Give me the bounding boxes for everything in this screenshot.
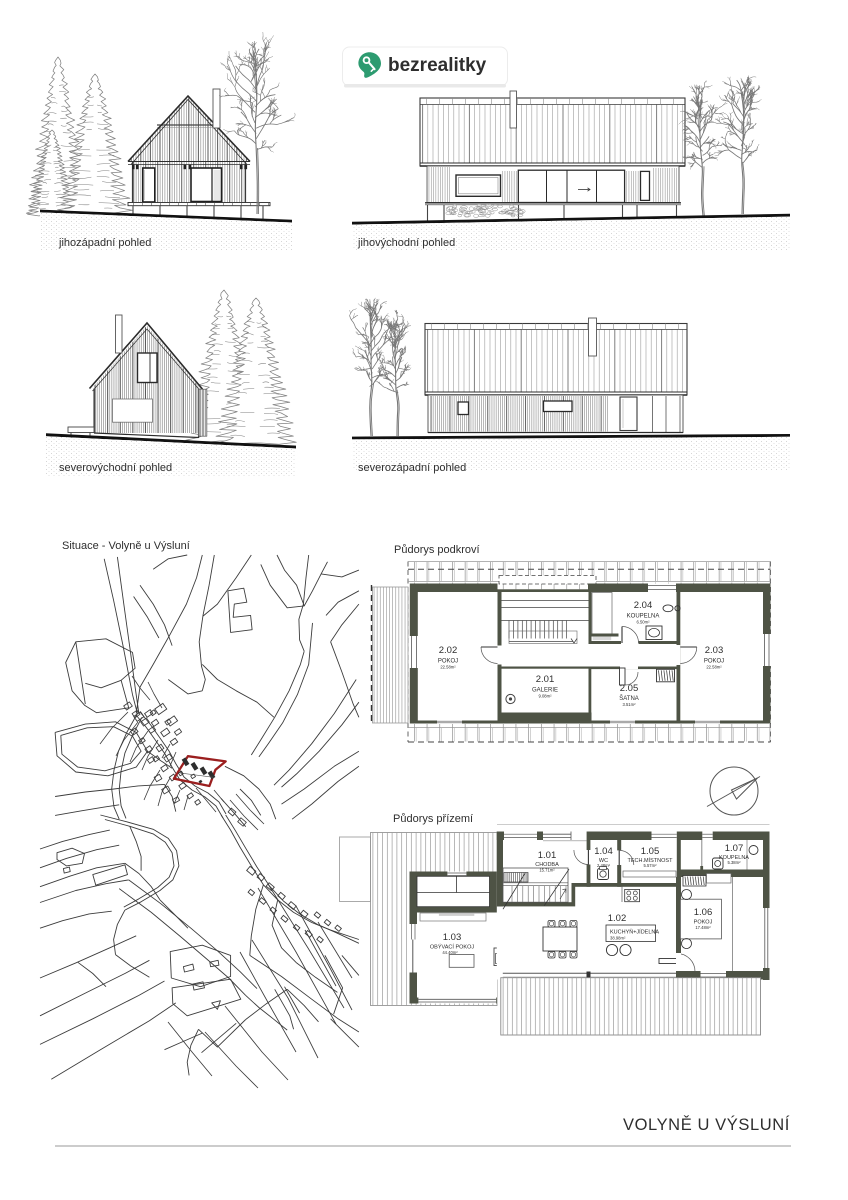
svg-text:ŠATNA: ŠATNA xyxy=(619,695,639,702)
svg-text:1.07: 1.07 xyxy=(725,843,744,854)
svg-text:Situace - Volyně u Výsluní: Situace - Volyně u Výsluní xyxy=(62,540,190,552)
svg-text:9.08m²: 9.08m² xyxy=(538,694,552,699)
svg-text:2.05: 2.05 xyxy=(620,683,639,694)
svg-text:jihozápadní pohled: jihozápadní pohled xyxy=(58,237,151,249)
svg-text:5.57m²: 5.57m² xyxy=(643,863,657,868)
svg-text:VOLYNĚ U VÝSLUNÍ: VOLYNĚ U VÝSLUNÍ xyxy=(623,1115,790,1134)
svg-text:1.03: 1.03 xyxy=(443,932,462,943)
svg-text:6.50m²: 6.50m² xyxy=(636,620,650,625)
svg-text:1.05: 1.05 xyxy=(641,846,660,857)
svg-text:1.01: 1.01 xyxy=(538,850,557,861)
svg-text:2.03: 2.03 xyxy=(705,645,724,656)
svg-text:5.38m²: 5.38m² xyxy=(727,860,741,865)
svg-text:1.02: 1.02 xyxy=(608,913,627,924)
svg-text:severozápadní pohled: severozápadní pohled xyxy=(358,462,466,474)
svg-text:17.48m²: 17.48m² xyxy=(695,925,711,930)
svg-text:3.51m²: 3.51m² xyxy=(622,702,636,707)
svg-text:1.06: 1.06 xyxy=(694,907,713,918)
svg-text:38.98m²: 38.98m² xyxy=(610,936,626,941)
svg-text:2.04: 2.04 xyxy=(634,600,653,611)
svg-text:Půdorys podkroví: Půdorys podkroví xyxy=(394,544,480,556)
svg-text:bezrealitky: bezrealitky xyxy=(388,55,487,76)
svg-text:2.48m²: 2.48m² xyxy=(597,863,611,868)
svg-text:15.71m²: 15.71m² xyxy=(539,868,555,873)
svg-text:1.04: 1.04 xyxy=(594,846,613,857)
svg-text:severovýchodní pohled: severovýchodní pohled xyxy=(59,462,172,474)
svg-text:jihovýchodní pohled: jihovýchodní pohled xyxy=(357,237,455,249)
svg-text:22.58m²: 22.58m² xyxy=(440,665,456,670)
svg-text:Půdorys přízemí: Půdorys přízemí xyxy=(393,813,473,825)
svg-text:2.01: 2.01 xyxy=(536,674,555,685)
svg-text:2.02: 2.02 xyxy=(439,645,458,656)
svg-text:KUCHYŇ+JÍDELNA: KUCHYŇ+JÍDELNA xyxy=(610,929,659,936)
svg-text:44.40m²: 44.40m² xyxy=(442,950,458,955)
svg-text:22.58m²: 22.58m² xyxy=(706,665,722,670)
